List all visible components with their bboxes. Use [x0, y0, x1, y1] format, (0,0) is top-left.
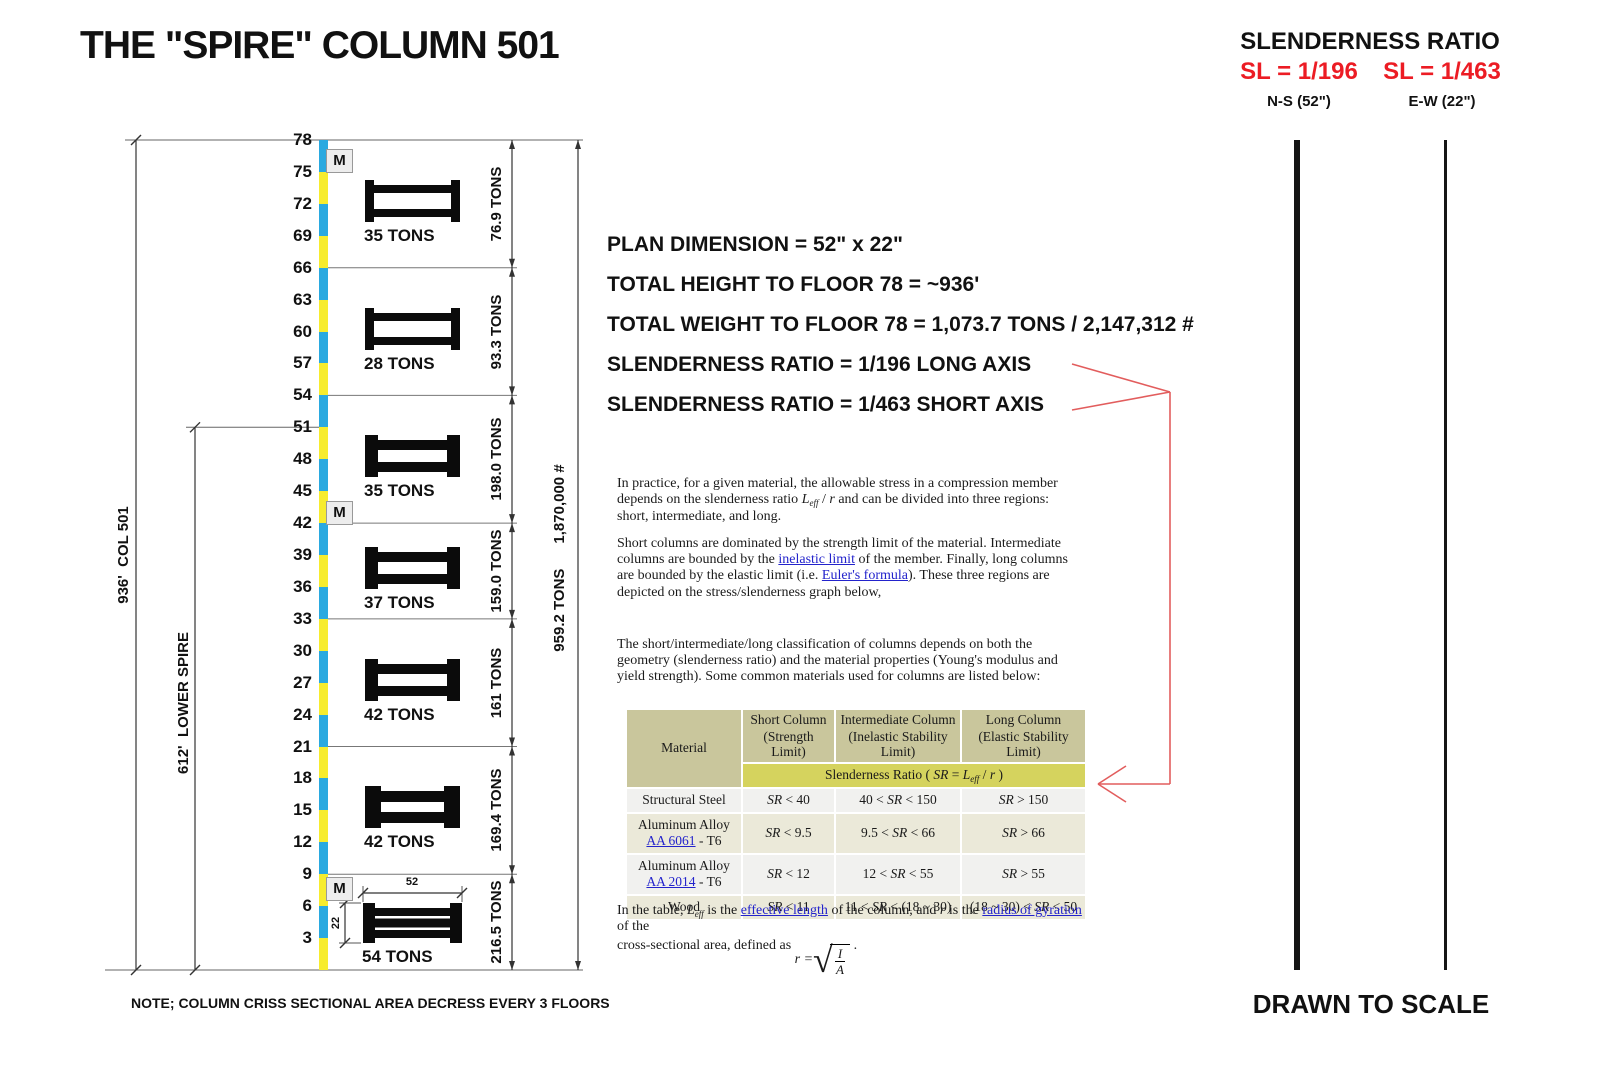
text-run: SR: [933, 767, 948, 782]
link-effective-length[interactable]: effective length: [741, 903, 828, 918]
text-run: < 66: [907, 825, 935, 840]
text-run: cross-sectional area, defined as: [617, 938, 795, 953]
header-bold: Short Column: [747, 712, 830, 729]
text-run: < 150: [902, 792, 937, 807]
material-row: Aluminum AlloyAA 2014 - T6SR < 1212 < SR…: [627, 855, 1085, 894]
text-run: SR: [999, 792, 1014, 807]
note-text: NOTE; COLUMN CRISS SECTIONAL AREA DECRES…: [131, 995, 610, 1011]
text-run: 9.5 <: [861, 825, 892, 840]
text-run: 40 <: [859, 792, 887, 807]
text-run: SR: [767, 792, 782, 807]
text-run: - T6: [696, 874, 722, 889]
text-run: SR: [891, 866, 906, 881]
table-subheader-slenderness: Slenderness Ratio ( SR = Leff / r ): [743, 764, 1085, 787]
formula-fraction: IA: [830, 944, 850, 977]
link-aa-6061[interactable]: AA 6061: [646, 833, 695, 848]
scale-column-ew: [1444, 140, 1447, 970]
text-run: Aluminum Alloy: [638, 817, 730, 832]
material-cell: Structural Steel: [627, 789, 741, 812]
text-run: is the: [704, 903, 741, 918]
formula-period: .: [850, 938, 857, 953]
sr-range-cell: 40 < SR < 150: [836, 789, 960, 812]
text-run: < 40: [782, 792, 810, 807]
text-run: /: [818, 492, 829, 507]
header-sub: (Strength Limit): [747, 729, 830, 760]
table-header-col-1: Intermediate Column(Inelastic Stability …: [836, 710, 960, 762]
table-header-col-2: Long Column(Elastic Stability Limit): [962, 710, 1085, 762]
text-run: < 9.5: [780, 825, 811, 840]
paragraph-classification: The short/intermediate/long classificati…: [617, 637, 1072, 686]
text-run: L: [687, 903, 695, 918]
sr-range-cell: SR < 12: [743, 855, 834, 894]
material-row: Aluminum AlloyAA 6061 - T6SR < 9.59.5 < …: [627, 814, 1085, 853]
total-weight-dim-label: 959.2 TONS 1,870,000 #: [551, 438, 569, 678]
formula-denominator: A: [835, 962, 845, 977]
table-header-col-0: Short Column(Strength Limit): [743, 710, 834, 762]
sr-range-cell: 9.5 < SR < 66: [836, 814, 960, 853]
text-run: - T6: [696, 833, 722, 848]
text-run: < 55: [906, 866, 934, 881]
text-run: > 66: [1017, 825, 1045, 840]
text-run: In the table,: [617, 903, 687, 918]
drawing-canvas: THE "SPIRE" COLUMN 501 SLENDERNESS RATIO…: [0, 0, 1600, 1067]
text-run: of the column, and: [828, 903, 940, 918]
table-footnote-line1: In the table, Leff is the effective leng…: [617, 903, 1087, 936]
drawn-to-scale-label: DRAWN TO SCALE: [1246, 989, 1496, 1020]
header-sub: (Elastic Stability Limit): [966, 729, 1081, 760]
text-run: is the: [945, 903, 982, 918]
text-run: ): [995, 767, 1003, 782]
text-run: Structural Steel: [642, 792, 726, 807]
text-run: SR: [767, 866, 782, 881]
scale-column-ns: [1294, 140, 1300, 970]
text-run: /: [979, 767, 990, 782]
text-run: SR: [1002, 866, 1017, 881]
formula-numerator: I: [835, 946, 845, 962]
text-run: eff: [970, 774, 979, 784]
total-height-dim-label: 936' COL 501: [115, 435, 133, 675]
text-run: > 55: [1017, 866, 1045, 881]
sr-range-cell: SR < 9.5: [743, 814, 834, 853]
text-run: Slenderness Ratio (: [825, 767, 933, 782]
header-bold: Intermediate Column: [840, 712, 956, 729]
materials-table: MaterialShort Column(Strength Limit)Inte…: [625, 708, 1087, 921]
link-euler-s-formula[interactable]: Euler's formula: [822, 568, 908, 583]
header-sub: (Inelastic Stability Limit): [840, 729, 956, 760]
text-run: =: [948, 767, 962, 782]
material-row: Structural SteelSR < 4040 < SR < 150SR >…: [627, 789, 1085, 812]
sr-range-cell: 12 < SR < 55: [836, 855, 960, 894]
text-run: SR: [765, 825, 780, 840]
sr-range-cell: SR > 66: [962, 814, 1085, 853]
material-cell: Aluminum AlloyAA 6061 - T6: [627, 814, 741, 853]
text-run: SR: [892, 825, 907, 840]
material-cell: Aluminum AlloyAA 2014 - T6: [627, 855, 741, 894]
link-radius-of-gyration[interactable]: radius of gyration: [982, 903, 1082, 918]
text-run: > 150: [1014, 792, 1049, 807]
radius-formula: r = √IA: [795, 944, 851, 977]
text-run: eff: [695, 909, 704, 919]
text-run: of the: [617, 919, 649, 934]
text-run: < 12: [782, 866, 810, 881]
paragraph-allowable-stress: In practice, for a given material, the a…: [617, 476, 1072, 525]
text-run: The short/intermediate/long classificati…: [617, 637, 1058, 684]
paragraph-column-regions: Short columns are dominated by the stren…: [617, 536, 1072, 601]
link-aa-2014[interactable]: AA 2014: [646, 874, 695, 889]
table-footnote-line2: cross-sectional area, defined as r = √IA…: [617, 938, 1087, 977]
table-header-material: Material: [627, 710, 741, 787]
text-run: Aluminum Alloy: [638, 858, 730, 873]
lower-spire-dim-label: 612' LOWER SPIRE: [175, 583, 193, 823]
text-run: SR: [1002, 825, 1017, 840]
sr-range-cell: SR > 55: [962, 855, 1085, 894]
sr-range-cell: SR > 150: [962, 789, 1085, 812]
formula-lhs: r =: [795, 952, 813, 968]
link-inelastic-limit[interactable]: inelastic limit: [778, 552, 855, 567]
text-run: SR: [887, 792, 902, 807]
header-bold: Long Column: [966, 712, 1081, 729]
text-run: 12 <: [863, 866, 891, 881]
sr-range-cell: SR < 40: [743, 789, 834, 812]
